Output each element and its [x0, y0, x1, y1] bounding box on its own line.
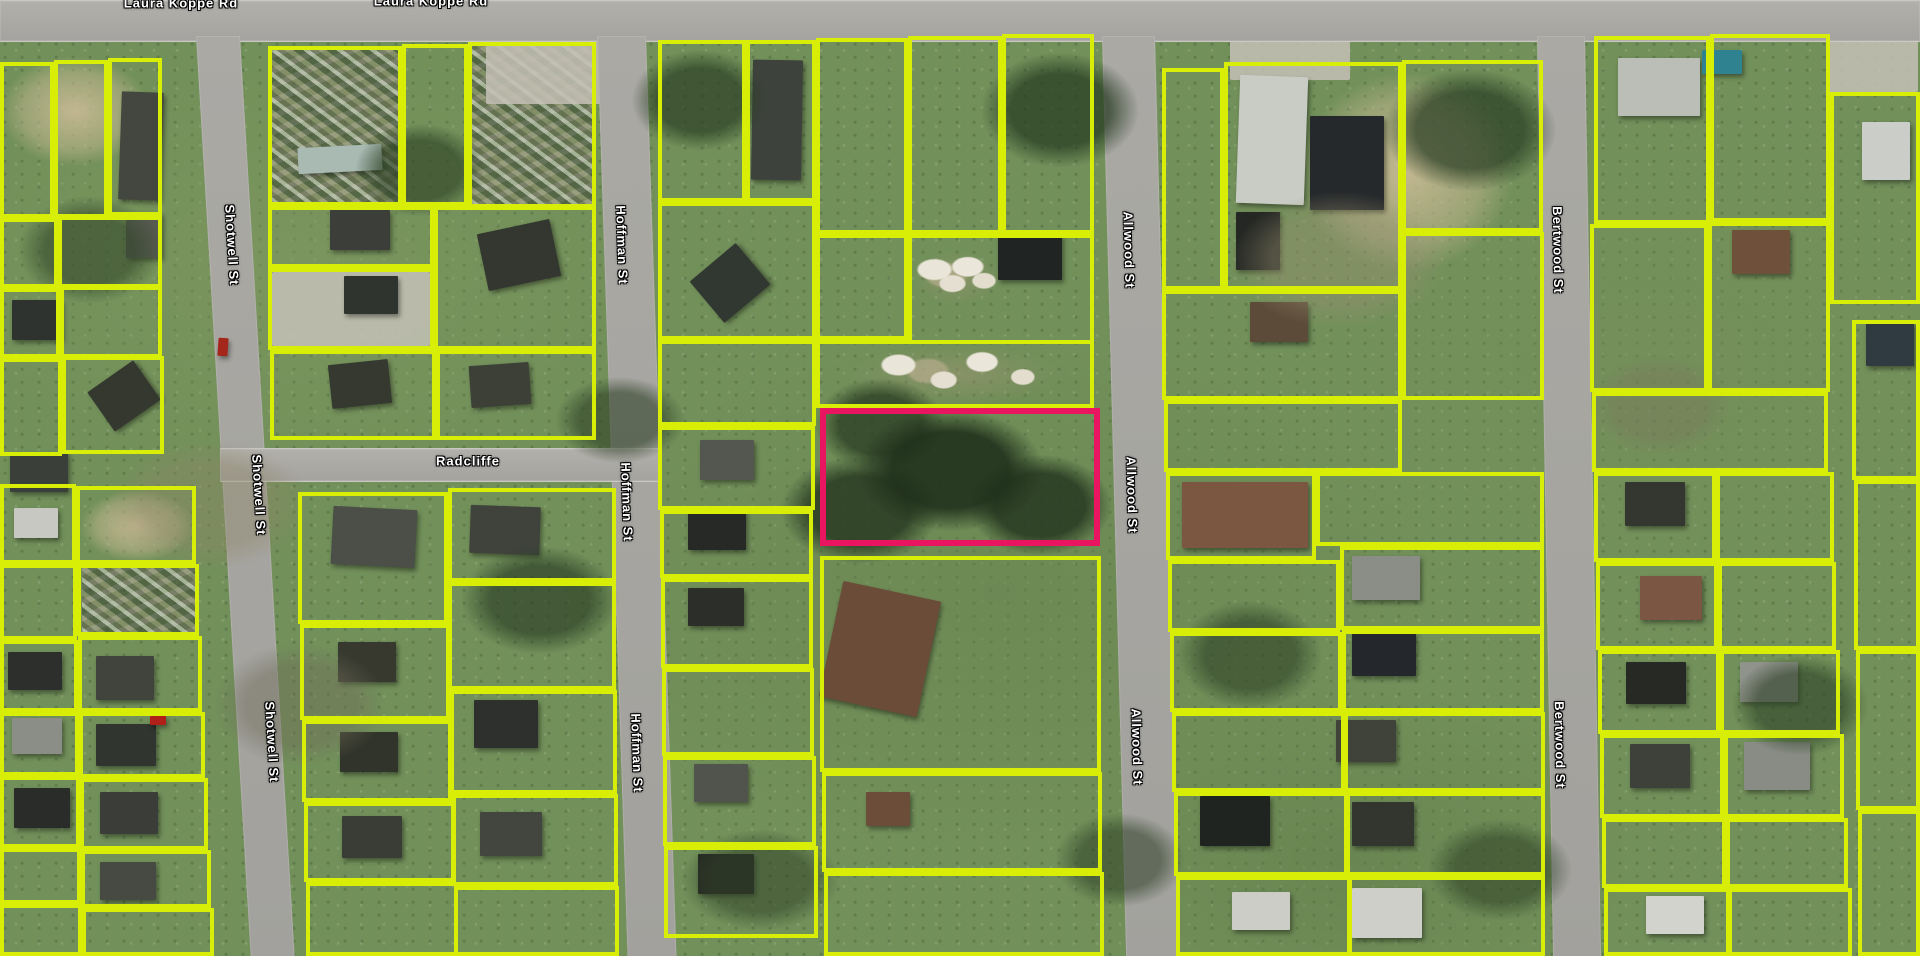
- parcel-outline[interactable]: [1854, 480, 1920, 650]
- parcel-outline[interactable]: [1728, 888, 1852, 956]
- parcel-outline[interactable]: [1830, 92, 1920, 304]
- parcel-outline[interactable]: [60, 286, 162, 358]
- parcel-outline[interactable]: [448, 582, 616, 690]
- parcel-outline[interactable]: [0, 640, 78, 712]
- ground-concrete-patch: [1828, 40, 1918, 92]
- map-canvas[interactable]: Laura Koppe RdLaura Koppe RdShotwell StS…: [0, 0, 1920, 956]
- parcel-outline[interactable]: [450, 690, 617, 794]
- parcel-outline[interactable]: [1708, 222, 1830, 392]
- parcel-outline[interactable]: [108, 58, 162, 216]
- parcel-outline[interactable]: [908, 36, 1002, 234]
- parcel-outline[interactable]: [1174, 792, 1348, 876]
- parcel-outline[interactable]: [436, 350, 596, 440]
- parcel-outline[interactable]: [82, 908, 214, 956]
- parcel-outline[interactable]: [824, 872, 1104, 956]
- parcel-outline[interactable]: [1594, 472, 1716, 562]
- parcel-outline[interactable]: [0, 848, 81, 904]
- parcel-outline[interactable]: [1176, 876, 1351, 956]
- parcel-outline[interactable]: [448, 488, 616, 582]
- parcel-outline[interactable]: [658, 426, 815, 510]
- parcel-outline[interactable]: [658, 40, 746, 202]
- parcel-outline[interactable]: [820, 556, 1101, 772]
- parcel-outline[interactable]: [268, 46, 402, 206]
- parcel-outline[interactable]: [1596, 562, 1718, 650]
- parcel-outline[interactable]: [304, 802, 455, 882]
- parcel-outline[interactable]: [268, 206, 434, 268]
- parcel-outline[interactable]: [434, 206, 596, 350]
- parcel-outline[interactable]: [1162, 290, 1402, 400]
- parcel-outline[interactable]: [1594, 36, 1710, 224]
- parcel-outline[interactable]: [1402, 60, 1543, 232]
- parcel-outline[interactable]: [452, 794, 618, 886]
- parcel-outline[interactable]: [306, 882, 458, 956]
- parcel-outline[interactable]: [746, 40, 816, 202]
- parcel-outline[interactable]: [0, 358, 62, 456]
- parcel-outline[interactable]: [79, 712, 205, 778]
- parcel-outline[interactable]: [454, 886, 619, 956]
- parcel-outline[interactable]: [1224, 62, 1402, 290]
- parcel-outline[interactable]: [1590, 224, 1708, 392]
- parcel-outline[interactable]: [816, 38, 908, 234]
- parcel-outline[interactable]: [1166, 472, 1316, 560]
- parcel-outline[interactable]: [816, 234, 908, 340]
- parcel-outline[interactable]: [1726, 818, 1848, 888]
- parcel-outline[interactable]: [1348, 876, 1545, 956]
- parcel-outline[interactable]: [0, 776, 80, 848]
- parcel-outline[interactable]: [1724, 734, 1844, 818]
- parcel-outline[interactable]: [1718, 562, 1836, 650]
- parcel-outline[interactable]: [78, 636, 202, 712]
- parcel-outline[interactable]: [0, 484, 76, 564]
- parcel-outline[interactable]: [1710, 34, 1830, 222]
- parcel-outline[interactable]: [1720, 650, 1840, 734]
- parcel-outline[interactable]: [662, 668, 814, 756]
- parcel-outline[interactable]: [664, 846, 818, 938]
- parcel-outline[interactable]: [1716, 472, 1834, 562]
- parcel-outline[interactable]: [270, 350, 436, 440]
- parcel-outline[interactable]: [1172, 712, 1345, 792]
- parcel-outline[interactable]: [1592, 392, 1828, 472]
- parcel-outline[interactable]: [77, 564, 199, 636]
- parcel-outline[interactable]: [1002, 34, 1094, 234]
- parcel-outline[interactable]: [908, 234, 1094, 344]
- parcel-outline[interactable]: [1852, 320, 1920, 480]
- parcel-outline[interactable]: [1600, 734, 1724, 818]
- parcel-outline[interactable]: [302, 720, 452, 802]
- parcel-outline[interactable]: [1164, 400, 1402, 472]
- parcel-outline[interactable]: [300, 624, 450, 720]
- parcel-outline[interactable]: [658, 202, 816, 340]
- parcel-outline[interactable]: [0, 904, 82, 956]
- parcel-outline[interactable]: [1598, 650, 1720, 734]
- parcel-outline[interactable]: [0, 712, 79, 776]
- parcel-outline[interactable]: [1342, 630, 1544, 712]
- parcel-outline[interactable]: [0, 288, 60, 358]
- parcel-outline[interactable]: [1170, 632, 1342, 712]
- parcel-outline[interactable]: [62, 356, 164, 454]
- parcel-outline[interactable]: [81, 850, 211, 908]
- parcel-outline[interactable]: [268, 268, 434, 350]
- parcel-outline[interactable]: [58, 216, 162, 288]
- parcel-outline[interactable]: [80, 778, 208, 850]
- parcel-outline[interactable]: [298, 492, 448, 624]
- parcel-outline[interactable]: [1168, 560, 1340, 632]
- parcel-outline[interactable]: [468, 42, 596, 208]
- parcel-outline[interactable]: [1340, 546, 1544, 630]
- parcel-outline[interactable]: [822, 772, 1102, 872]
- parcel-outline[interactable]: [658, 340, 816, 426]
- highlighted-parcel[interactable]: [820, 408, 1100, 546]
- parcel-outline[interactable]: [816, 340, 1094, 408]
- parcel-outline[interactable]: [1316, 472, 1544, 546]
- parcel-outline[interactable]: [663, 756, 816, 846]
- building: [217, 338, 228, 357]
- parcel-outline[interactable]: [1856, 650, 1920, 810]
- parcel-outline[interactable]: [1858, 810, 1920, 956]
- parcel-outline[interactable]: [0, 218, 58, 288]
- parcel-outline[interactable]: [1604, 888, 1730, 956]
- parcel-outline[interactable]: [1344, 712, 1545, 792]
- parcel-outline[interactable]: [76, 486, 196, 564]
- parcel-outline[interactable]: [0, 564, 77, 640]
- parcel-outline[interactable]: [54, 60, 108, 218]
- parcel-outline[interactable]: [402, 44, 468, 206]
- parcel-outline[interactable]: [0, 62, 54, 218]
- parcel-outline[interactable]: [1402, 232, 1544, 400]
- parcel-outline[interactable]: [660, 510, 813, 578]
- parcel-outline[interactable]: [661, 578, 813, 668]
- parcel-outline[interactable]: [1346, 792, 1545, 876]
- parcel-outline[interactable]: [1162, 68, 1224, 290]
- road-radcliffe: [220, 448, 662, 482]
- parcel-outline[interactable]: [1602, 818, 1726, 888]
